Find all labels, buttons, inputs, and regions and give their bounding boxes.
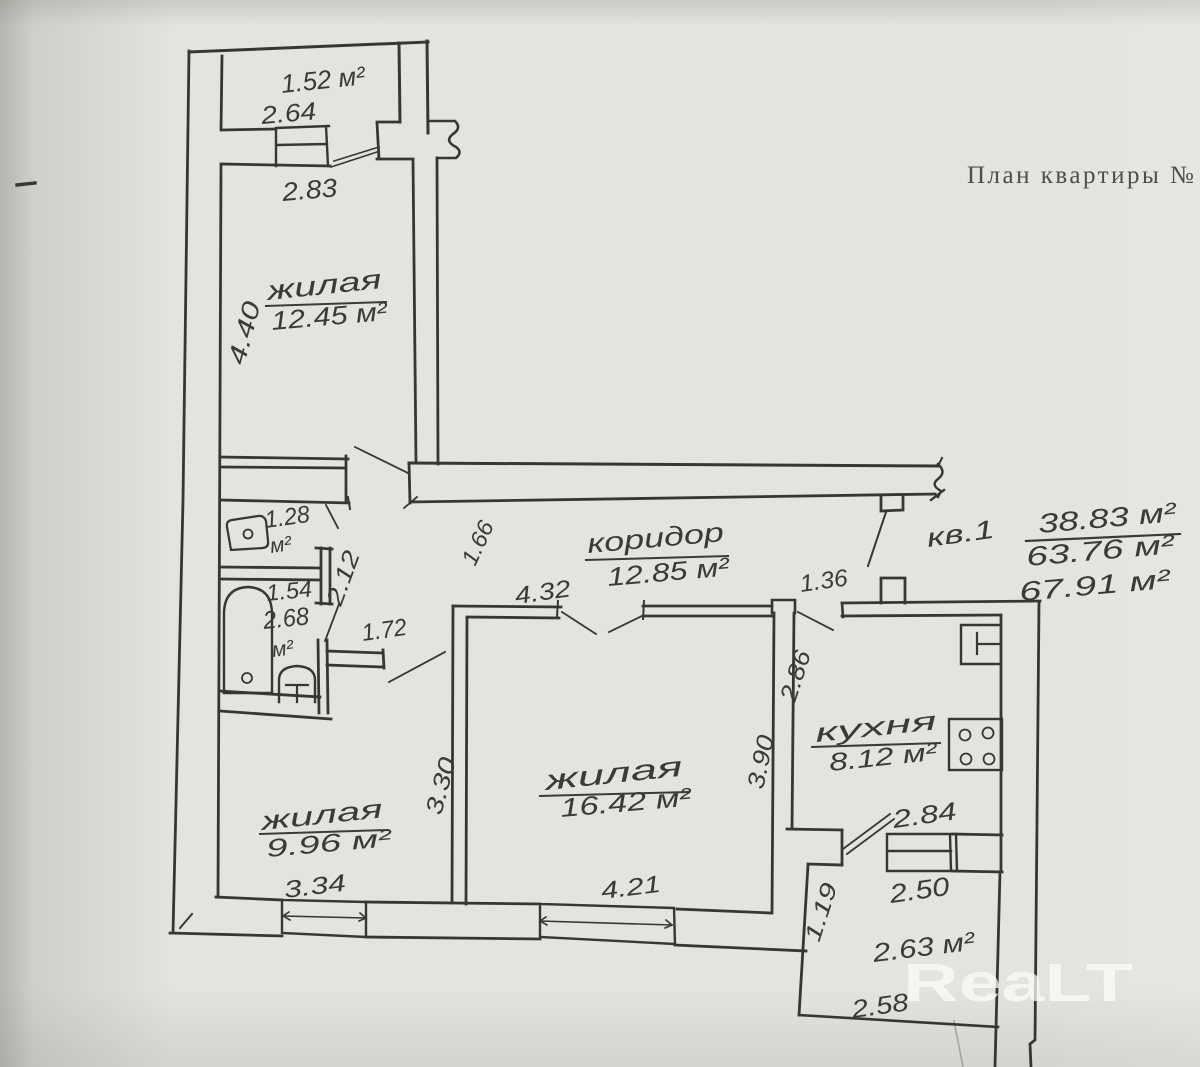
svg-text:1.28: 1.28 — [263, 501, 312, 534]
svg-text:4.21: 4.21 — [599, 871, 662, 905]
svg-text:3.30: 3.30 — [421, 754, 462, 818]
svg-text:2.68: 2.68 — [261, 602, 311, 635]
svg-text:2.12: 2.12 — [321, 547, 366, 610]
svg-text:м²: м² — [268, 532, 293, 558]
svg-text:1.54: 1.54 — [265, 575, 313, 606]
svg-text:2.64: 2.64 — [259, 97, 317, 130]
svg-text:2.83: 2.83 — [280, 172, 339, 207]
svg-text:3.34: 3.34 — [282, 870, 347, 904]
svg-text:кв.1: кв.1 — [925, 514, 997, 553]
svg-text:4.32: 4.32 — [513, 575, 572, 610]
svg-text:1.36: 1.36 — [798, 564, 850, 598]
svg-text:м²: м² — [270, 636, 295, 662]
svg-text:1.52 м²: 1.52 м² — [279, 60, 367, 99]
svg-text:1.72: 1.72 — [360, 614, 408, 647]
svg-text:2.50: 2.50 — [886, 871, 951, 909]
svg-text:2.86: 2.86 — [775, 646, 817, 706]
svg-text:2.84: 2.84 — [890, 797, 959, 834]
svg-text:3.90: 3.90 — [742, 732, 780, 791]
svg-text:2.58: 2.58 — [849, 988, 911, 1024]
svg-text:1.66: 1.66 — [456, 516, 499, 569]
svg-text:4.40: 4.40 — [223, 298, 267, 367]
svg-text:План квартиры №: План квартиры № — [967, 162, 1196, 189]
svg-text:12.85 м²: 12.85 м² — [606, 551, 732, 592]
svg-text:ReaLT: ReaLT — [903, 953, 1133, 1013]
